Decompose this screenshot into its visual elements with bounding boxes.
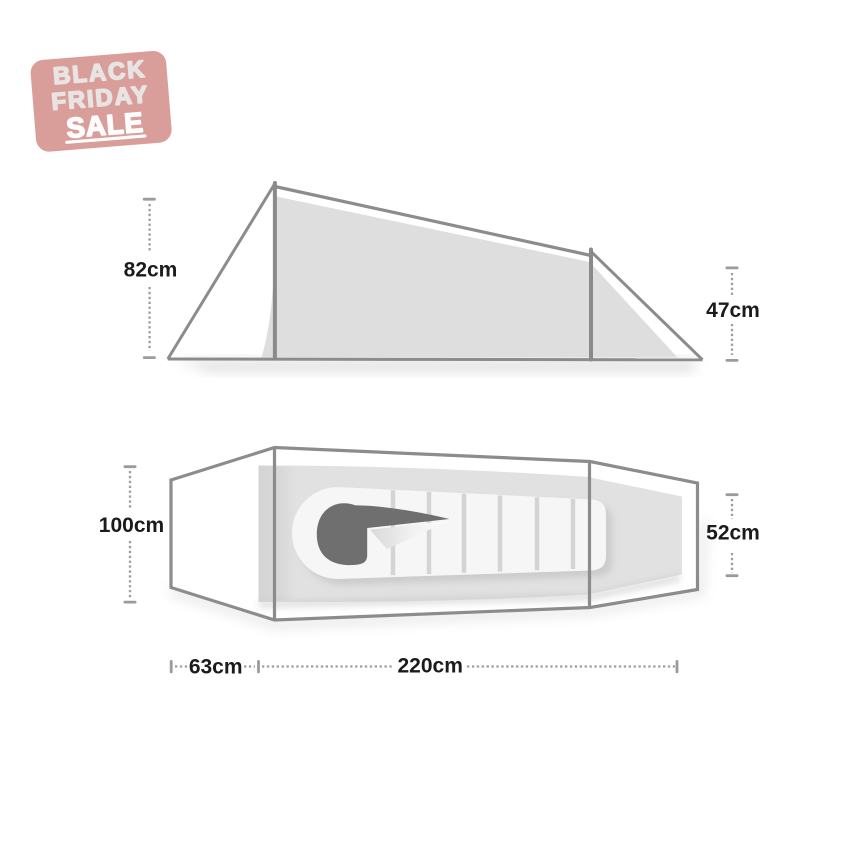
svg-text:47cm: 47cm xyxy=(706,299,760,322)
svg-text:52cm: 52cm xyxy=(706,522,760,545)
svg-text:220cm: 220cm xyxy=(398,654,463,677)
svg-text:82cm: 82cm xyxy=(124,259,178,282)
svg-text:100cm: 100cm xyxy=(99,514,164,537)
svg-text:63cm: 63cm xyxy=(189,655,243,678)
